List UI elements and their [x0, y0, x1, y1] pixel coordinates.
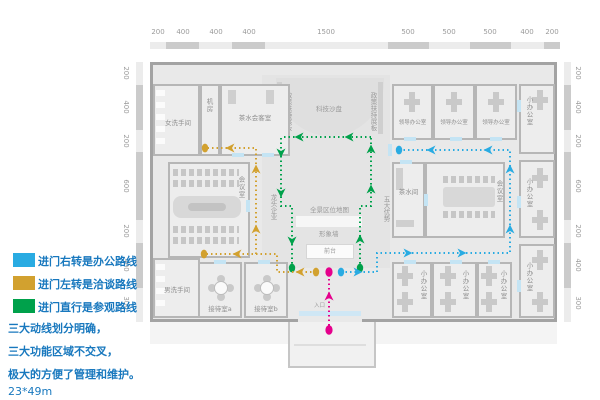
note-line-3: 极大的方便了管理和维护。: [8, 366, 140, 382]
talk-route-arrows: [201, 144, 319, 277]
legend-visit-label: 进门直行是参观路线: [38, 299, 137, 315]
floor-plan-page: 200 400 400 400 1500 500 500 500 400 200…: [0, 0, 600, 400]
routes-overlay: [0, 0, 600, 400]
legend-swatch-office: [13, 253, 35, 267]
legend-office-label: 进门右转是办公路线: [38, 253, 137, 269]
office-route-arrows: [338, 146, 515, 277]
legend-swatch-talk: [13, 276, 35, 290]
note-line-2: 三大功能区域不交叉，: [8, 343, 118, 359]
building-size-label: 23*49m: [8, 385, 52, 398]
office-route: [341, 150, 510, 272]
talk-route: [204, 148, 316, 272]
visit-route: [281, 137, 371, 268]
legend-talk-label: 进门左转是洽谈路线: [38, 276, 137, 292]
visit-route-arrows: [277, 133, 376, 273]
note-line-1: 三大动线划分明确，: [8, 320, 107, 336]
legend-swatch-visit: [13, 299, 35, 313]
